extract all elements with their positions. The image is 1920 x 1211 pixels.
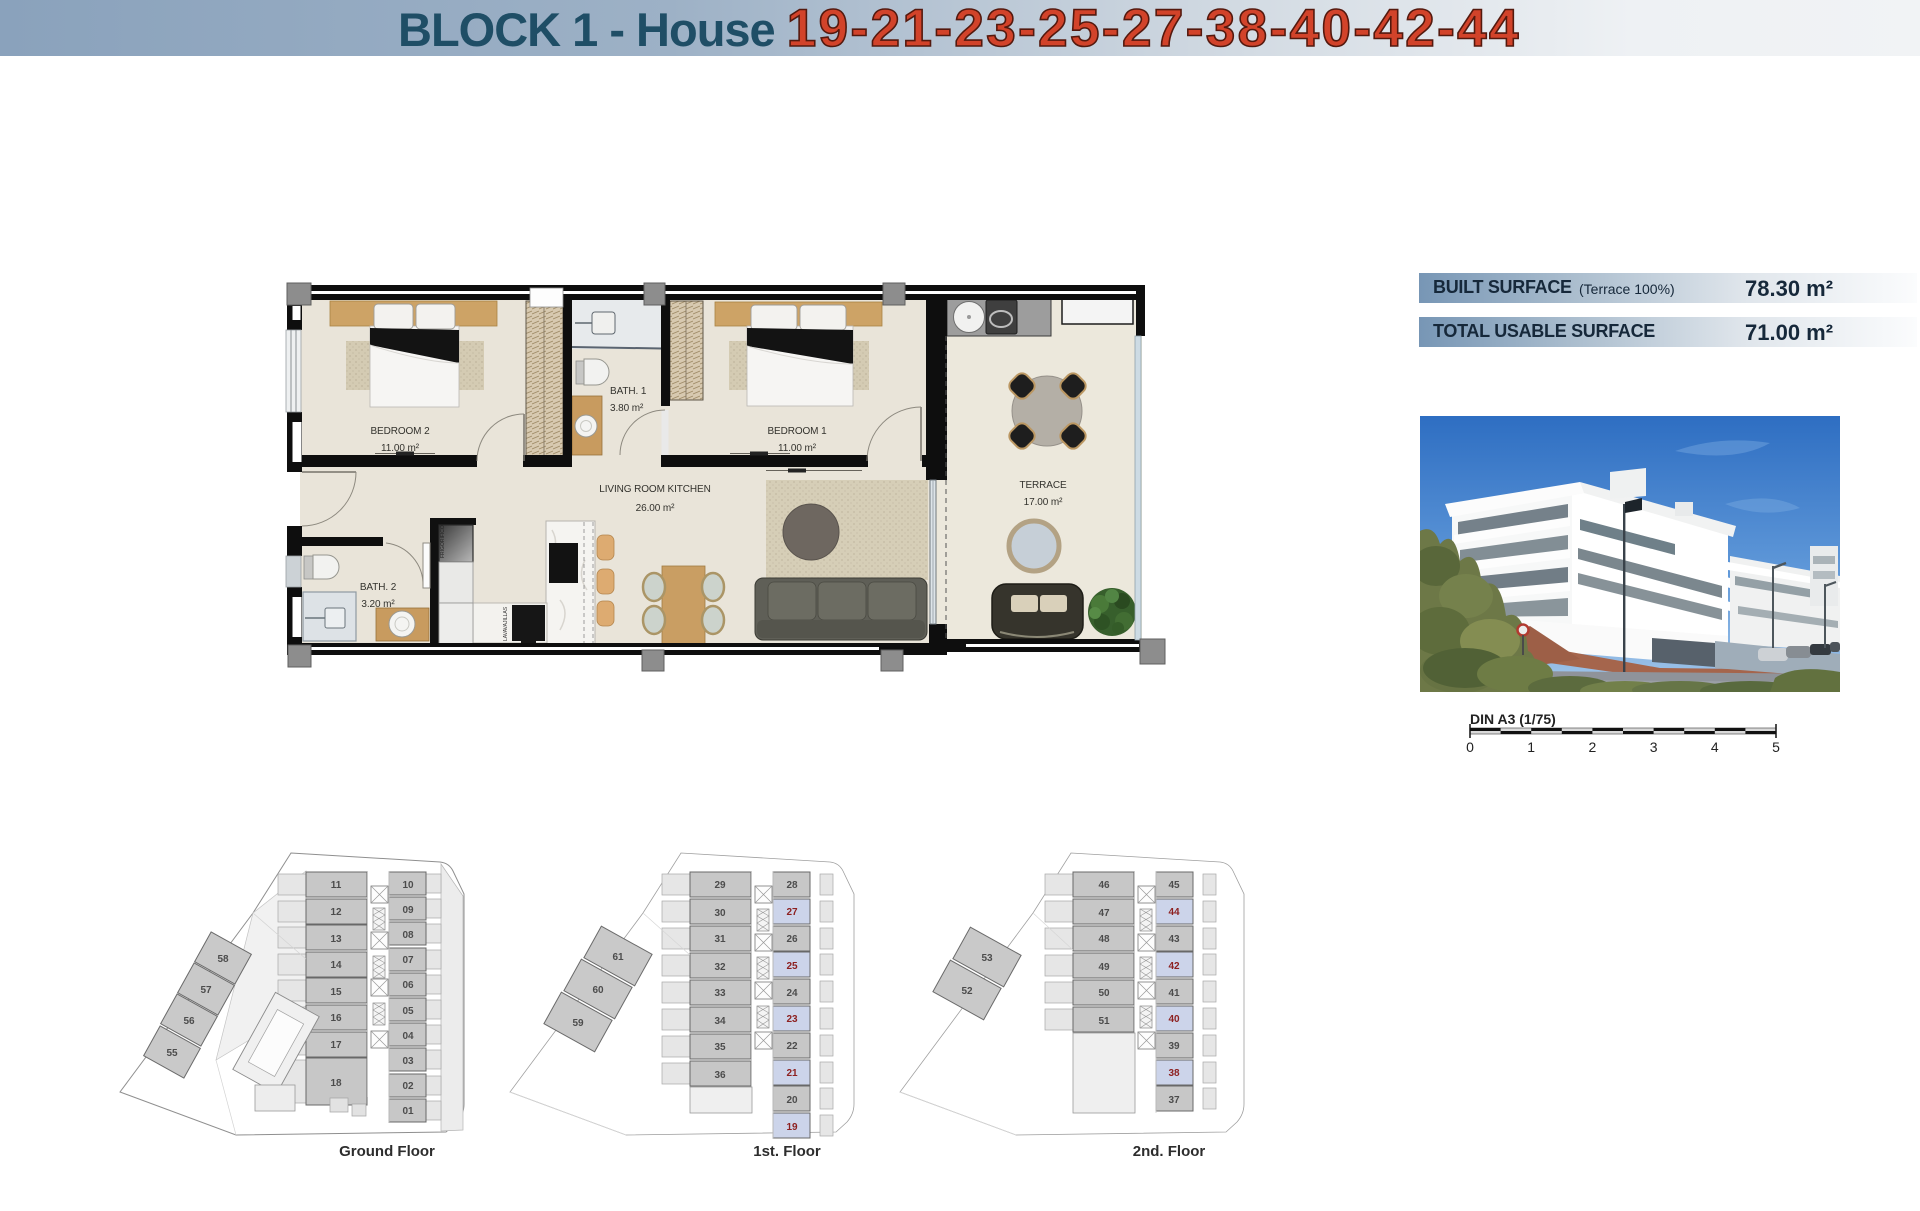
svg-text:BEDROOM 2: BEDROOM 2 bbox=[370, 426, 430, 437]
svg-text:48: 48 bbox=[1098, 934, 1110, 945]
svg-text:17: 17 bbox=[330, 1040, 342, 1051]
svg-text:59: 59 bbox=[572, 1018, 584, 1029]
svg-text:44: 44 bbox=[1168, 907, 1180, 918]
svg-text:11.00 m²: 11.00 m² bbox=[381, 443, 420, 454]
svg-text:BEDROOM 1: BEDROOM 1 bbox=[767, 426, 827, 437]
svg-text:4: 4 bbox=[1711, 739, 1719, 755]
svg-text:29: 29 bbox=[714, 880, 726, 891]
svg-text:56: 56 bbox=[183, 1016, 195, 1027]
svg-text:5: 5 bbox=[1772, 739, 1780, 755]
svg-text:DIN A3 (1/75): DIN A3 (1/75) bbox=[1470, 711, 1556, 727]
svg-text:30: 30 bbox=[714, 908, 726, 919]
svg-text:25: 25 bbox=[786, 961, 798, 972]
svg-text:LIVING ROOM KITCHEN: LIVING ROOM KITCHEN bbox=[599, 484, 710, 495]
svg-text:46: 46 bbox=[1098, 880, 1110, 891]
svg-text:11.00 m²: 11.00 m² bbox=[778, 443, 817, 454]
svg-text:52: 52 bbox=[961, 986, 973, 997]
svg-text:1st. Floor: 1st. Floor bbox=[753, 1143, 821, 1160]
svg-text:TERRACE: TERRACE bbox=[1019, 480, 1067, 491]
svg-text:14: 14 bbox=[330, 960, 342, 971]
svg-text:19: 19 bbox=[786, 1122, 798, 1133]
svg-text:53: 53 bbox=[981, 953, 993, 964]
svg-text:24: 24 bbox=[786, 988, 798, 999]
svg-text:11: 11 bbox=[331, 880, 342, 891]
svg-text:33: 33 bbox=[714, 988, 726, 999]
svg-text:42: 42 bbox=[1168, 961, 1180, 972]
svg-text:47: 47 bbox=[1098, 908, 1110, 919]
svg-text:23: 23 bbox=[786, 1014, 798, 1025]
svg-text:05: 05 bbox=[402, 1006, 414, 1017]
svg-text:BATH. 1: BATH. 1 bbox=[610, 386, 647, 397]
svg-text:3.80 m²: 3.80 m² bbox=[610, 403, 644, 414]
svg-text:01: 01 bbox=[402, 1106, 414, 1117]
svg-text:10: 10 bbox=[402, 880, 414, 891]
svg-text:51: 51 bbox=[1098, 1016, 1110, 1027]
svg-text:34: 34 bbox=[714, 1016, 726, 1027]
svg-text:03: 03 bbox=[402, 1056, 414, 1067]
svg-text:38: 38 bbox=[1168, 1068, 1180, 1079]
svg-text:17.00 m²: 17.00 m² bbox=[1024, 497, 1063, 508]
svg-text:26.00 m²: 26.00 m² bbox=[636, 503, 675, 514]
svg-text:27: 27 bbox=[786, 907, 798, 918]
svg-text:31: 31 bbox=[714, 934, 726, 945]
svg-text:02: 02 bbox=[402, 1081, 414, 1092]
svg-text:20: 20 bbox=[786, 1095, 798, 1106]
svg-text:26: 26 bbox=[786, 934, 798, 945]
svg-text:49: 49 bbox=[1098, 962, 1110, 973]
svg-text:06: 06 bbox=[402, 980, 414, 991]
svg-text:08: 08 bbox=[402, 930, 414, 941]
svg-text:LAVAVAJILLAS: LAVAVAJILLAS bbox=[503, 606, 509, 641]
svg-text:57: 57 bbox=[200, 985, 212, 996]
svg-text:16: 16 bbox=[330, 1013, 342, 1024]
svg-text:21: 21 bbox=[786, 1068, 798, 1079]
svg-text:35: 35 bbox=[714, 1042, 726, 1053]
svg-text:12: 12 bbox=[330, 907, 342, 918]
svg-text:40: 40 bbox=[1168, 1014, 1180, 1025]
svg-text:61: 61 bbox=[612, 952, 624, 963]
svg-text:09: 09 bbox=[402, 905, 414, 916]
svg-text:13: 13 bbox=[330, 934, 342, 945]
svg-text:04: 04 bbox=[402, 1031, 414, 1042]
svg-text:32: 32 bbox=[714, 962, 726, 973]
svg-text:41: 41 bbox=[1168, 988, 1180, 999]
svg-text:39: 39 bbox=[1168, 1041, 1180, 1052]
svg-text:55: 55 bbox=[166, 1048, 178, 1059]
svg-text:2: 2 bbox=[1589, 739, 1597, 755]
svg-text:45: 45 bbox=[1168, 880, 1180, 891]
svg-text:FRIGORIFICO: FRIGORIFICO bbox=[440, 525, 446, 558]
svg-text:07: 07 bbox=[402, 955, 414, 966]
svg-text:28: 28 bbox=[786, 880, 798, 891]
svg-text:36: 36 bbox=[714, 1070, 726, 1081]
svg-text:37: 37 bbox=[1168, 1095, 1180, 1106]
svg-text:3: 3 bbox=[1650, 739, 1658, 755]
svg-text:22: 22 bbox=[786, 1041, 798, 1052]
svg-text:58: 58 bbox=[217, 954, 229, 965]
svg-text:60: 60 bbox=[592, 985, 604, 996]
svg-text:3.20 m²: 3.20 m² bbox=[361, 599, 395, 610]
svg-text:2nd. Floor: 2nd. Floor bbox=[1133, 1143, 1206, 1160]
svg-text:0: 0 bbox=[1466, 739, 1474, 755]
svg-text:Ground Floor: Ground Floor bbox=[339, 1143, 435, 1160]
svg-text:15: 15 bbox=[330, 987, 342, 998]
svg-text:BATH. 2: BATH. 2 bbox=[360, 582, 397, 593]
svg-text:1: 1 bbox=[1527, 739, 1535, 755]
svg-text:43: 43 bbox=[1168, 934, 1180, 945]
svg-text:18: 18 bbox=[330, 1078, 342, 1089]
svg-text:50: 50 bbox=[1098, 988, 1110, 999]
